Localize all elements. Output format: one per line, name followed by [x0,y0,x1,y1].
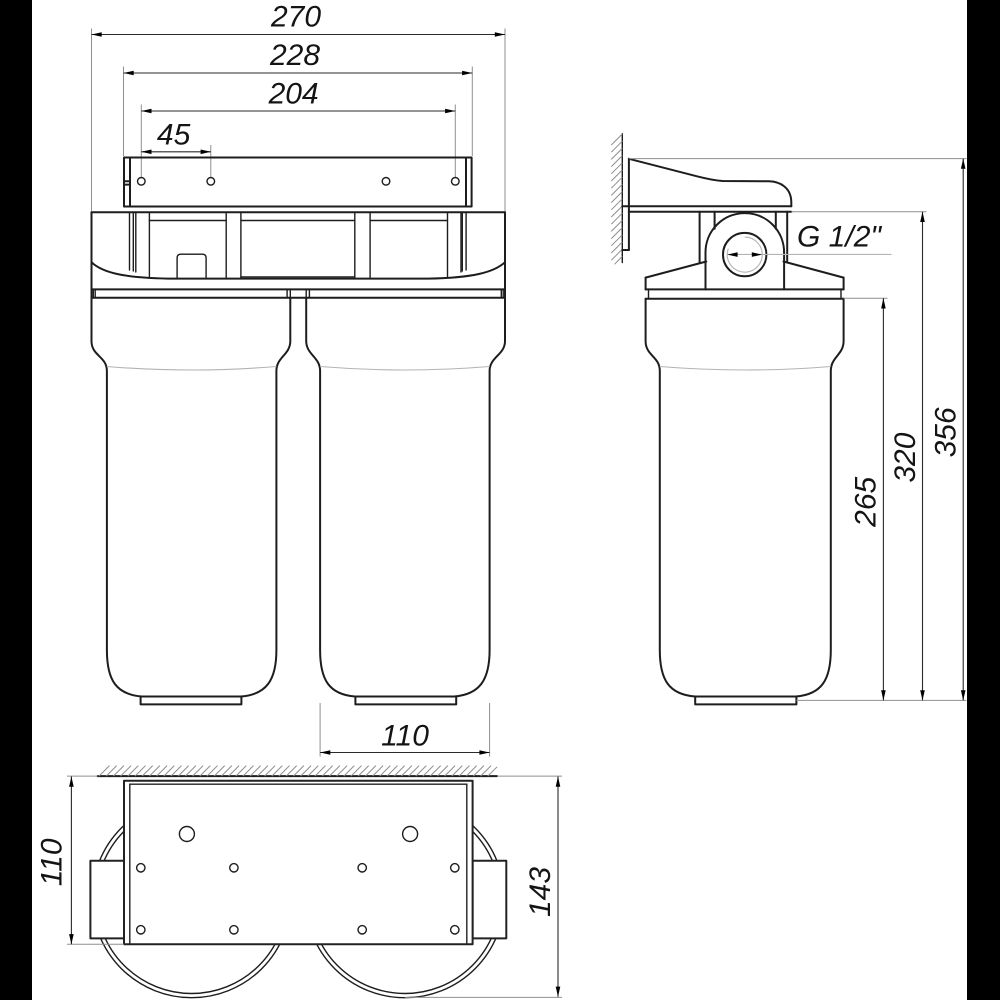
svg-text:356: 356 [930,407,963,457]
svg-text:G 1/2": G 1/2" [797,221,882,254]
svg-text:270: 270 [270,0,321,33]
svg-text:320: 320 [889,432,922,482]
svg-text:265: 265 [850,476,883,527]
svg-text:204: 204 [268,77,319,110]
svg-text:228: 228 [269,39,320,72]
svg-text:45: 45 [157,119,191,152]
svg-text:110: 110 [381,720,429,753]
svg-text:110: 110 [36,838,69,886]
svg-text:143: 143 [524,867,557,917]
